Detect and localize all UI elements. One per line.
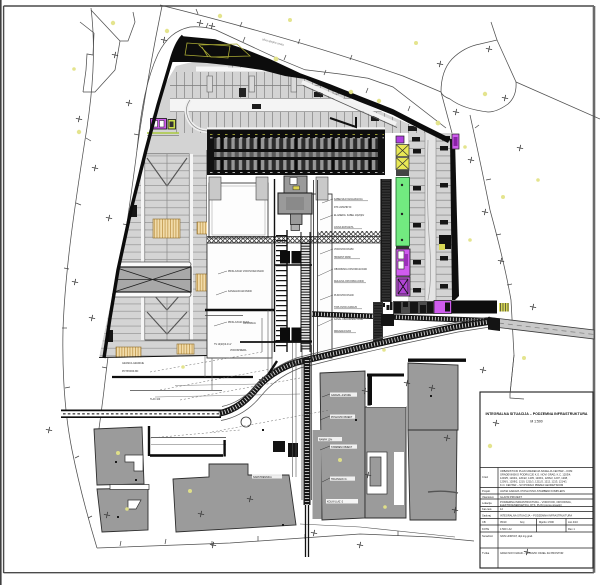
svg-text:Rev 1: Rev 1 <box>568 527 575 531</box>
svg-text:05/10: 05/10 <box>500 520 507 524</box>
svg-text:TLAK 100: TLAK 100 <box>150 398 161 401</box>
svg-text:JAVNA GARAZA I POSLOVNO-STAMBE: JAVNA GARAZA I POSLOVNO-STAMBENI KOMPLEK… <box>500 489 565 493</box>
svg-text:TS 10(20)/0.4 kV: TS 10(20)/0.4 kV <box>214 344 232 346</box>
svg-text:NADSTRESNICA: NADSTRESNICA <box>253 476 272 479</box>
svg-text:List 4/10: List 4/10 <box>568 520 578 524</box>
svg-text:TRGOVACKI C.: TRGOVACKI C. <box>331 478 348 481</box>
svg-text:Suradnici: Suradnici <box>482 534 493 538</box>
svg-text:M 1:500: M 1:500 <box>530 420 542 424</box>
svg-text:KOLNI ULAZ -2: KOLNI ULAZ -2 <box>327 501 344 504</box>
svg-text:Mjerilo 1:500: Mjerilo 1:500 <box>539 520 554 524</box>
svg-text:KANAL OBORINSKE VODE: KANAL OBORINSKE VODE <box>334 318 363 321</box>
svg-text:Sadrzaj: Sadrzaj <box>482 514 491 518</box>
svg-text:VODOVOD DN150: VODOVOD DN150 <box>334 249 354 251</box>
svg-text:ODVODNJA: ODVODNJA <box>243 322 256 325</box>
svg-text:Vlasnistvo: Vlasnistvo <box>482 495 494 499</box>
svg-text:Kat.cest.: Kat.cest. <box>482 507 492 511</box>
svg-text:K.O. CENTAR – SVI PODACI PREMA: K.O. CENTAR – SVI PODACI PREMA GEODETSKO… <box>500 483 563 487</box>
svg-text:DTK 2xPEHD 50: DTK 2xPEHD 50 <box>334 207 352 209</box>
svg-text:JAVNA RASVJETA: JAVNA RASVJETA <box>334 226 354 229</box>
svg-text:STAMBENI OBJEKT: STAMBENI OBJEKT <box>331 446 353 449</box>
svg-text:broj: broj <box>520 520 525 524</box>
svg-text:GRAD NOVI GRAD – UPRAVNI ODJEL: GRAD NOVI GRAD – UPRAVNI ODJEL ZA PROSTO… <box>500 551 563 555</box>
svg-text:1203/5, 1204/1, 1204/2, 1205,: 1203/5, 1204/1, 1204/2, 1205, 1206/1, 12… <box>500 476 568 480</box>
svg-text:KANALIZACIJA DN300: KANALIZACIJA DN300 <box>228 290 252 293</box>
svg-text:1209/1, 1209/2, 1210, 1211/1,: 1209/1, 1209/2, 1210, 1211/1, 1211/2, 12… <box>500 480 567 484</box>
svg-text:EL.ENERG. KABEL 10(20)kV: EL.ENERG. KABEL 10(20)kV <box>334 214 365 217</box>
svg-text:GLAVNI PROJEKT: GLAVNI PROJEKT <box>500 495 522 499</box>
svg-text:Crtez: Crtez <box>482 475 489 479</box>
svg-text:POSLOVNI OBJEKT: POSLOVNI OBJEKT <box>331 417 353 419</box>
svg-text:IVAN HORVAT, dipl.ing.grad.: IVAN HORVAT, dipl.ing.grad. <box>500 534 533 538</box>
svg-text:INTEGRALNA SITUACIJA – PODZEMN: INTEGRALNA SITUACIJA – PODZEMNA INFRASTR… <box>485 412 587 416</box>
svg-text:ELEKTROENERGETIKA, DTK, PLIN (: ELEKTROENERGETIKA, DTK, PLIN (prema situ… <box>500 503 562 507</box>
svg-text:HIDRANT DN80: HIDRANT DN80 <box>334 256 351 259</box>
svg-text:PRIKLJUCAK VODOVODA DN100: PRIKLJUCAK VODOVODA DN100 <box>228 270 264 273</box>
svg-text:CB: CB <box>482 520 486 524</box>
svg-text:URBANISTICKI PLAN UREDENJA NAS: URBANISTICKI PLAN UREDENJA NASELJA CENTA… <box>500 469 572 473</box>
svg-text:DRENAZA D200: DRENAZA D200 <box>334 330 352 333</box>
svg-text:GARAZA -2 ETAZE: GARAZA -2 ETAZE <box>331 394 351 397</box>
svg-text:POTPORNI ZID: POTPORNI ZID <box>122 371 139 373</box>
svg-text:RAMPA 12%: RAMPA 12% <box>319 438 332 441</box>
svg-text:Lokacija: Lokacija <box>482 501 492 505</box>
svg-text:GRADEVINSKO PODRUCJE K.O. NOVI: GRADEVINSKO PODRUCJE K.O. NOVI GRAD, K.C… <box>500 472 571 476</box>
svg-text:1:500 / A2: 1:500 / A2 <box>500 527 512 531</box>
svg-text:GRANICA GRADNJE: GRANICA GRADNJE <box>122 362 144 365</box>
svg-text:Tvrtka: Tvrtka <box>482 551 490 555</box>
svg-text:KOTE: KOTE <box>482 527 489 531</box>
svg-text:Projekt: Projekt <box>482 489 490 493</box>
svg-text:INTEGRALNA SITUACIJA – PODZEMN: INTEGRALNA SITUACIJA – PODZEMNA INFRASTR… <box>500 514 572 518</box>
svg-text:OBORINSKA ODVODNJA D400: OBORINSKA ODVODNJA D400 <box>334 268 368 271</box>
svg-text:FEKALNA ODVODNJA D300: FEKALNA ODVODNJA D300 <box>334 280 364 283</box>
svg-text:VODOSPREMA: VODOSPREMA <box>230 349 247 352</box>
svg-text:PLINOVOD DN100: PLINOVOD DN100 <box>334 295 354 297</box>
svg-text:KABELSKA KANALIZACIJA: KABELSKA KANALIZACIJA <box>334 198 363 201</box>
